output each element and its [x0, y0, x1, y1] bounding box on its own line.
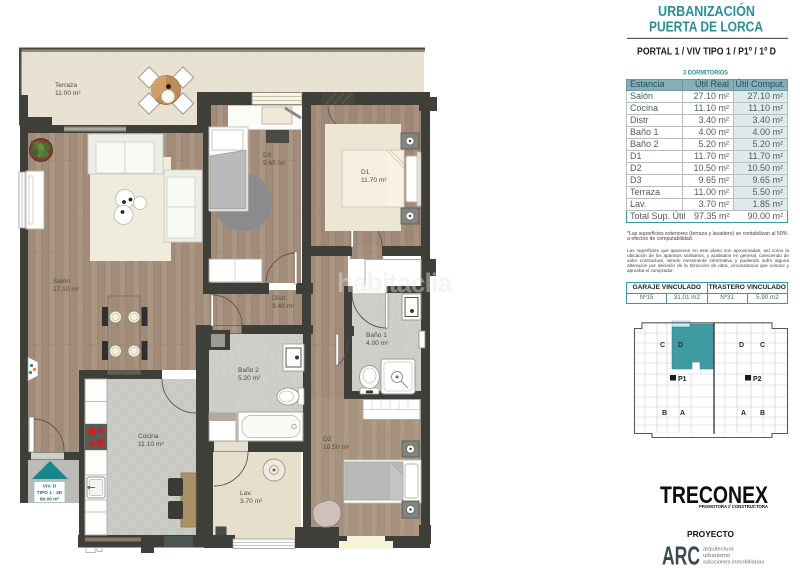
svg-text:B: B: [662, 410, 667, 417]
svg-text:A: A: [680, 410, 685, 417]
svg-text:TIPO 1 - 3D: TIPO 1 - 3D: [37, 490, 63, 496]
svg-text:5.20 m²: 5.20 m²: [238, 375, 261, 382]
svg-text:11.00 m²: 11.00 m²: [55, 90, 81, 97]
svg-text:3.40 m²: 3.40 m²: [272, 303, 295, 310]
svg-text:10.50 m²: 10.50 m²: [323, 444, 350, 451]
svg-text:C: C: [660, 342, 665, 349]
svg-text:VIV. D: VIV. D: [43, 484, 57, 490]
svg-text:habitaclia: habitaclia: [337, 268, 454, 298]
svg-text:arquitectura: arquitectura: [703, 547, 734, 553]
svg-text:soluciones inmobiliarias: soluciones inmobiliarias: [703, 560, 764, 566]
svg-text:3 DORMITORIOS: 3 DORMITORIOS: [683, 70, 728, 77]
svg-text:B: B: [760, 410, 765, 417]
svg-text:4.00 m²: 4.00 m²: [366, 340, 389, 347]
svg-text:D: D: [739, 342, 744, 349]
svg-text:P1: P1: [678, 376, 687, 383]
svg-text:Cocina: Cocina: [138, 433, 159, 440]
svg-text:Terraza: Terraza: [55, 82, 77, 89]
svg-text:C: C: [760, 342, 765, 349]
svg-text:PORTAL 1 / VIV TIPO 1 / P1º /: PORTAL 1 / VIV TIPO 1 / P1º / 1º D: [637, 46, 776, 58]
svg-text:Salón: Salón: [53, 278, 70, 285]
svg-text:D3: D3: [263, 152, 272, 159]
svg-text:3.70 m²: 3.70 m²: [240, 498, 263, 505]
svg-text:Distr: Distr: [272, 295, 286, 302]
svg-text:ARC: ARC: [662, 541, 700, 571]
svg-text:90.00 m²: 90.00 m²: [40, 497, 60, 503]
svg-text:A: A: [741, 410, 746, 417]
svg-text:27.10 m²: 27.10 m²: [53, 286, 80, 293]
svg-text:PROYECTO: PROYECTO: [687, 530, 735, 539]
svg-text:D2: D2: [323, 436, 332, 443]
svg-text:D: D: [678, 342, 683, 349]
svg-text:PROMOTORA // CONSTRUCTORA: PROMOTORA // CONSTRUCTORA: [699, 504, 769, 509]
svg-text:9.65 m²: 9.65 m²: [263, 160, 286, 167]
svg-text:Lav.: Lav.: [240, 490, 252, 497]
svg-text:PUERTA DE LORCA: PUERTA DE LORCA: [649, 20, 763, 36]
svg-text:Baño 1: Baño 1: [366, 332, 387, 339]
svg-text:D1: D1: [361, 169, 370, 176]
svg-text:URBANIZACIÓN: URBANIZACIÓN: [658, 2, 755, 20]
svg-text:11.10 m²: 11.10 m²: [138, 441, 164, 448]
svg-text:P2: P2: [753, 376, 762, 383]
svg-text:11.70 m²: 11.70 m²: [361, 177, 387, 184]
svg-text:Baño 2: Baño 2: [238, 367, 259, 374]
svg-text:urbanismo: urbanismo: [703, 553, 730, 559]
